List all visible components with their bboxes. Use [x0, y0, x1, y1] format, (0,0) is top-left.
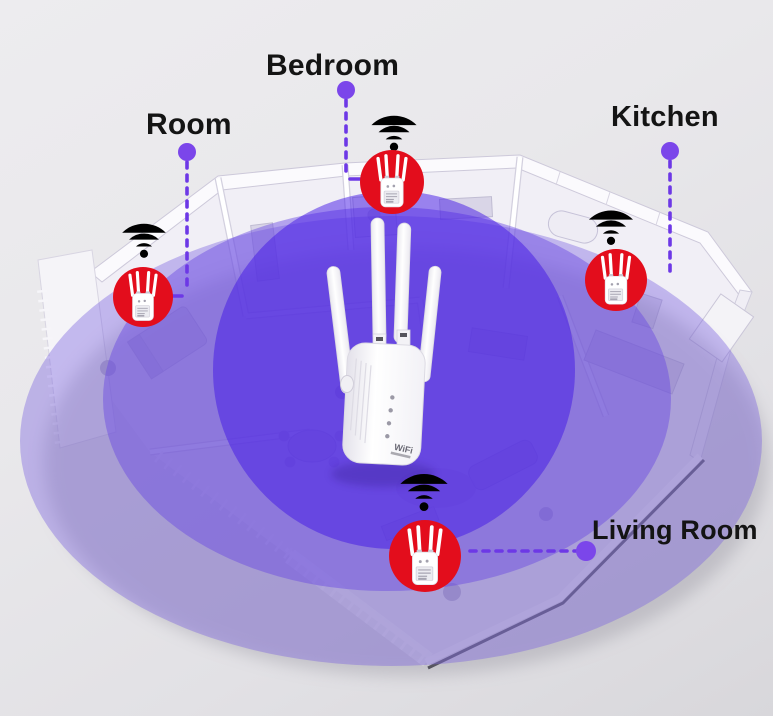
repeater-icon — [402, 524, 448, 589]
room-label-room: Room — [146, 108, 232, 142]
room-label-kitchen: Kitchen — [611, 101, 719, 134]
device-wps-button — [340, 375, 354, 393]
repeater-marker-bedroom — [360, 150, 424, 214]
room-label-bedroom: Bedroom — [266, 49, 399, 83]
connector-dot-kitchen — [661, 142, 679, 160]
wifi-signal-icon-room — [118, 217, 170, 258]
repeater-icon — [124, 270, 162, 324]
wifi-signal-icon-living — [395, 467, 453, 511]
repeater-marker-living-room — [389, 520, 461, 592]
connector-dot-room — [178, 143, 196, 161]
connector-dot-bedroom — [337, 81, 355, 99]
repeater-icon — [372, 153, 413, 211]
repeater-marker-room — [113, 267, 173, 327]
wifi-signal-icon-bedroom — [366, 109, 422, 151]
wifi-coverage-diagram: WiFi Room Bedroom Kitchen Living Room — [0, 0, 773, 716]
repeater-icon — [596, 252, 636, 308]
repeater-marker-kitchen — [585, 249, 647, 311]
room-label-living-room: Living Room — [592, 515, 758, 546]
device-antenna-center-left — [371, 218, 386, 342]
wifi-signal-icon-kitchen — [584, 204, 638, 245]
